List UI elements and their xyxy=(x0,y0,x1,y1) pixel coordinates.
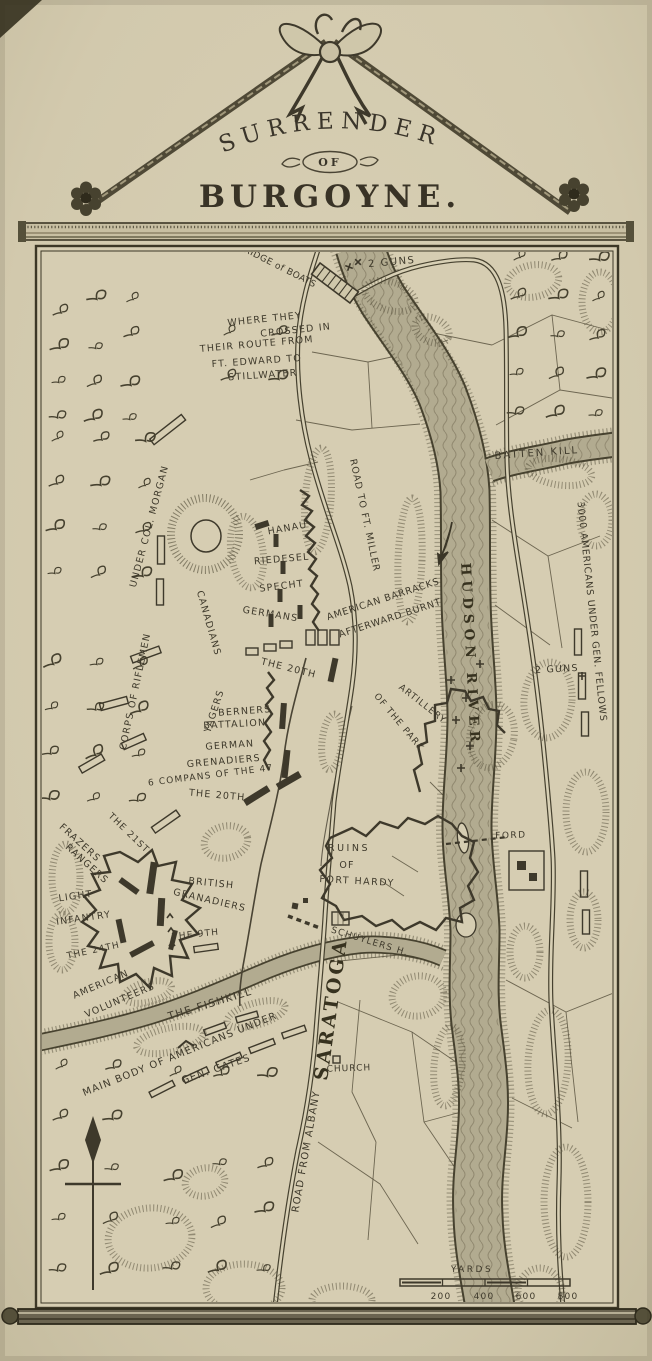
scale-tick: 200 xyxy=(431,1292,452,1302)
scale-tick: 600 xyxy=(516,1292,537,1302)
label-church: CHURCH xyxy=(327,1063,372,1075)
label-2-guns-right: 2 GUNS xyxy=(535,663,579,676)
bottom-roller-icon xyxy=(2,1308,651,1324)
label-ruins: RUINS xyxy=(328,843,370,854)
map-border xyxy=(36,246,618,1308)
scale-units-label: YARDS xyxy=(450,1265,493,1275)
engraved-map-page: SURRENDER OF BURGOYNE. xyxy=(0,0,652,1361)
title-of: OF xyxy=(318,156,341,169)
label-ford: FORD xyxy=(495,830,527,841)
top-roller-icon xyxy=(18,221,634,242)
label-of: OF xyxy=(339,860,354,871)
title-burgoyne: BURGOYNE. xyxy=(199,179,461,215)
scale-tick: 400 xyxy=(474,1292,495,1302)
scale-tick: 800 xyxy=(558,1292,579,1302)
surrender-of-burgoyne-map: SURRENDER OF BURGOYNE. xyxy=(0,0,652,1361)
